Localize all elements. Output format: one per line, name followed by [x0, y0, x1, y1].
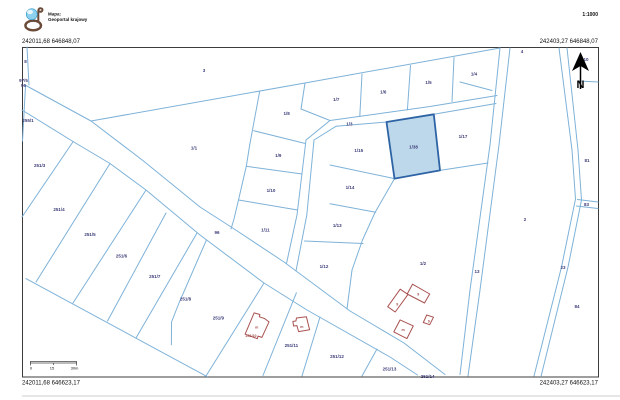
svg-text:84: 84 — [574, 304, 580, 309]
svg-text:1/10: 1/10 — [267, 188, 276, 193]
svg-text:242403,27 646848,07: 242403,27 646848,07 — [540, 39, 599, 45]
svg-text:251/14: 251/14 — [421, 374, 435, 379]
svg-text:96: 96 — [214, 230, 220, 235]
svg-text:Geoportal krajowy: Geoportal krajowy — [48, 17, 88, 22]
svg-text:251/12: 251/12 — [330, 354, 344, 359]
svg-text:30m: 30m — [71, 366, 79, 371]
svg-text:1/3: 1/3 — [346, 122, 353, 127]
svg-text:251/5: 251/5 — [84, 232, 96, 237]
svg-text:Mapa:: Mapa: — [48, 12, 62, 17]
svg-text:251/13: 251/13 — [383, 367, 397, 372]
svg-text:1/8: 1/8 — [283, 111, 290, 116]
svg-text:251/11: 251/11 — [285, 343, 299, 348]
svg-text:1:1000: 1:1000 — [582, 12, 598, 18]
svg-text:m: m — [300, 325, 303, 329]
svg-text:242011,68 646848,07: 242011,68 646848,07 — [22, 39, 81, 45]
svg-text:242011,68 646623,17: 242011,68 646623,17 — [22, 381, 81, 387]
svg-text:1/9: 1/9 — [275, 153, 282, 158]
svg-text:1/7: 1/7 — [333, 97, 340, 102]
svg-text:1/13: 1/13 — [333, 223, 342, 228]
svg-text:251/7: 251/7 — [149, 274, 161, 279]
svg-text:1/5: 1/5 — [425, 80, 432, 85]
svg-text:9: 9 — [428, 320, 430, 324]
svg-text:1/11: 1/11 — [261, 227, 270, 232]
svg-text:9: 9 — [396, 302, 398, 306]
svg-text:251/3: 251/3 — [34, 163, 46, 168]
svg-text:13: 13 — [474, 269, 480, 274]
svg-text:251/6: 251/6 — [116, 254, 128, 259]
svg-text:255/1: 255/1 — [22, 118, 34, 123]
svg-text:251/10: 251/10 — [246, 334, 257, 338]
svg-text:1/2: 1/2 — [420, 261, 427, 266]
svg-text:m: m — [255, 326, 258, 330]
svg-text:83: 83 — [584, 202, 590, 207]
svg-text:1/6: 1/6 — [380, 90, 387, 95]
svg-text:81: 81 — [584, 158, 590, 163]
svg-text:9: 9 — [417, 293, 419, 297]
svg-text:1/15: 1/15 — [354, 148, 363, 153]
svg-text:1/17: 1/17 — [459, 134, 468, 139]
svg-text:251/4: 251/4 — [53, 207, 65, 212]
svg-text:1/12: 1/12 — [320, 264, 329, 269]
svg-text:23: 23 — [560, 265, 566, 270]
svg-text:251/8: 251/8 — [180, 297, 192, 302]
svg-text:96: 96 — [21, 83, 27, 88]
svg-text:1/4: 1/4 — [471, 71, 478, 76]
svg-text:251/9: 251/9 — [213, 316, 225, 321]
svg-text:1/14: 1/14 — [346, 185, 355, 190]
svg-text:1/38: 1/38 — [409, 145, 418, 150]
svg-text:242403,27 646623,17: 242403,27 646623,17 — [540, 381, 599, 387]
svg-text:15: 15 — [50, 366, 55, 371]
svg-text:m: m — [401, 328, 404, 332]
svg-text:1/1: 1/1 — [191, 146, 198, 151]
svg-text:N: N — [577, 79, 585, 91]
